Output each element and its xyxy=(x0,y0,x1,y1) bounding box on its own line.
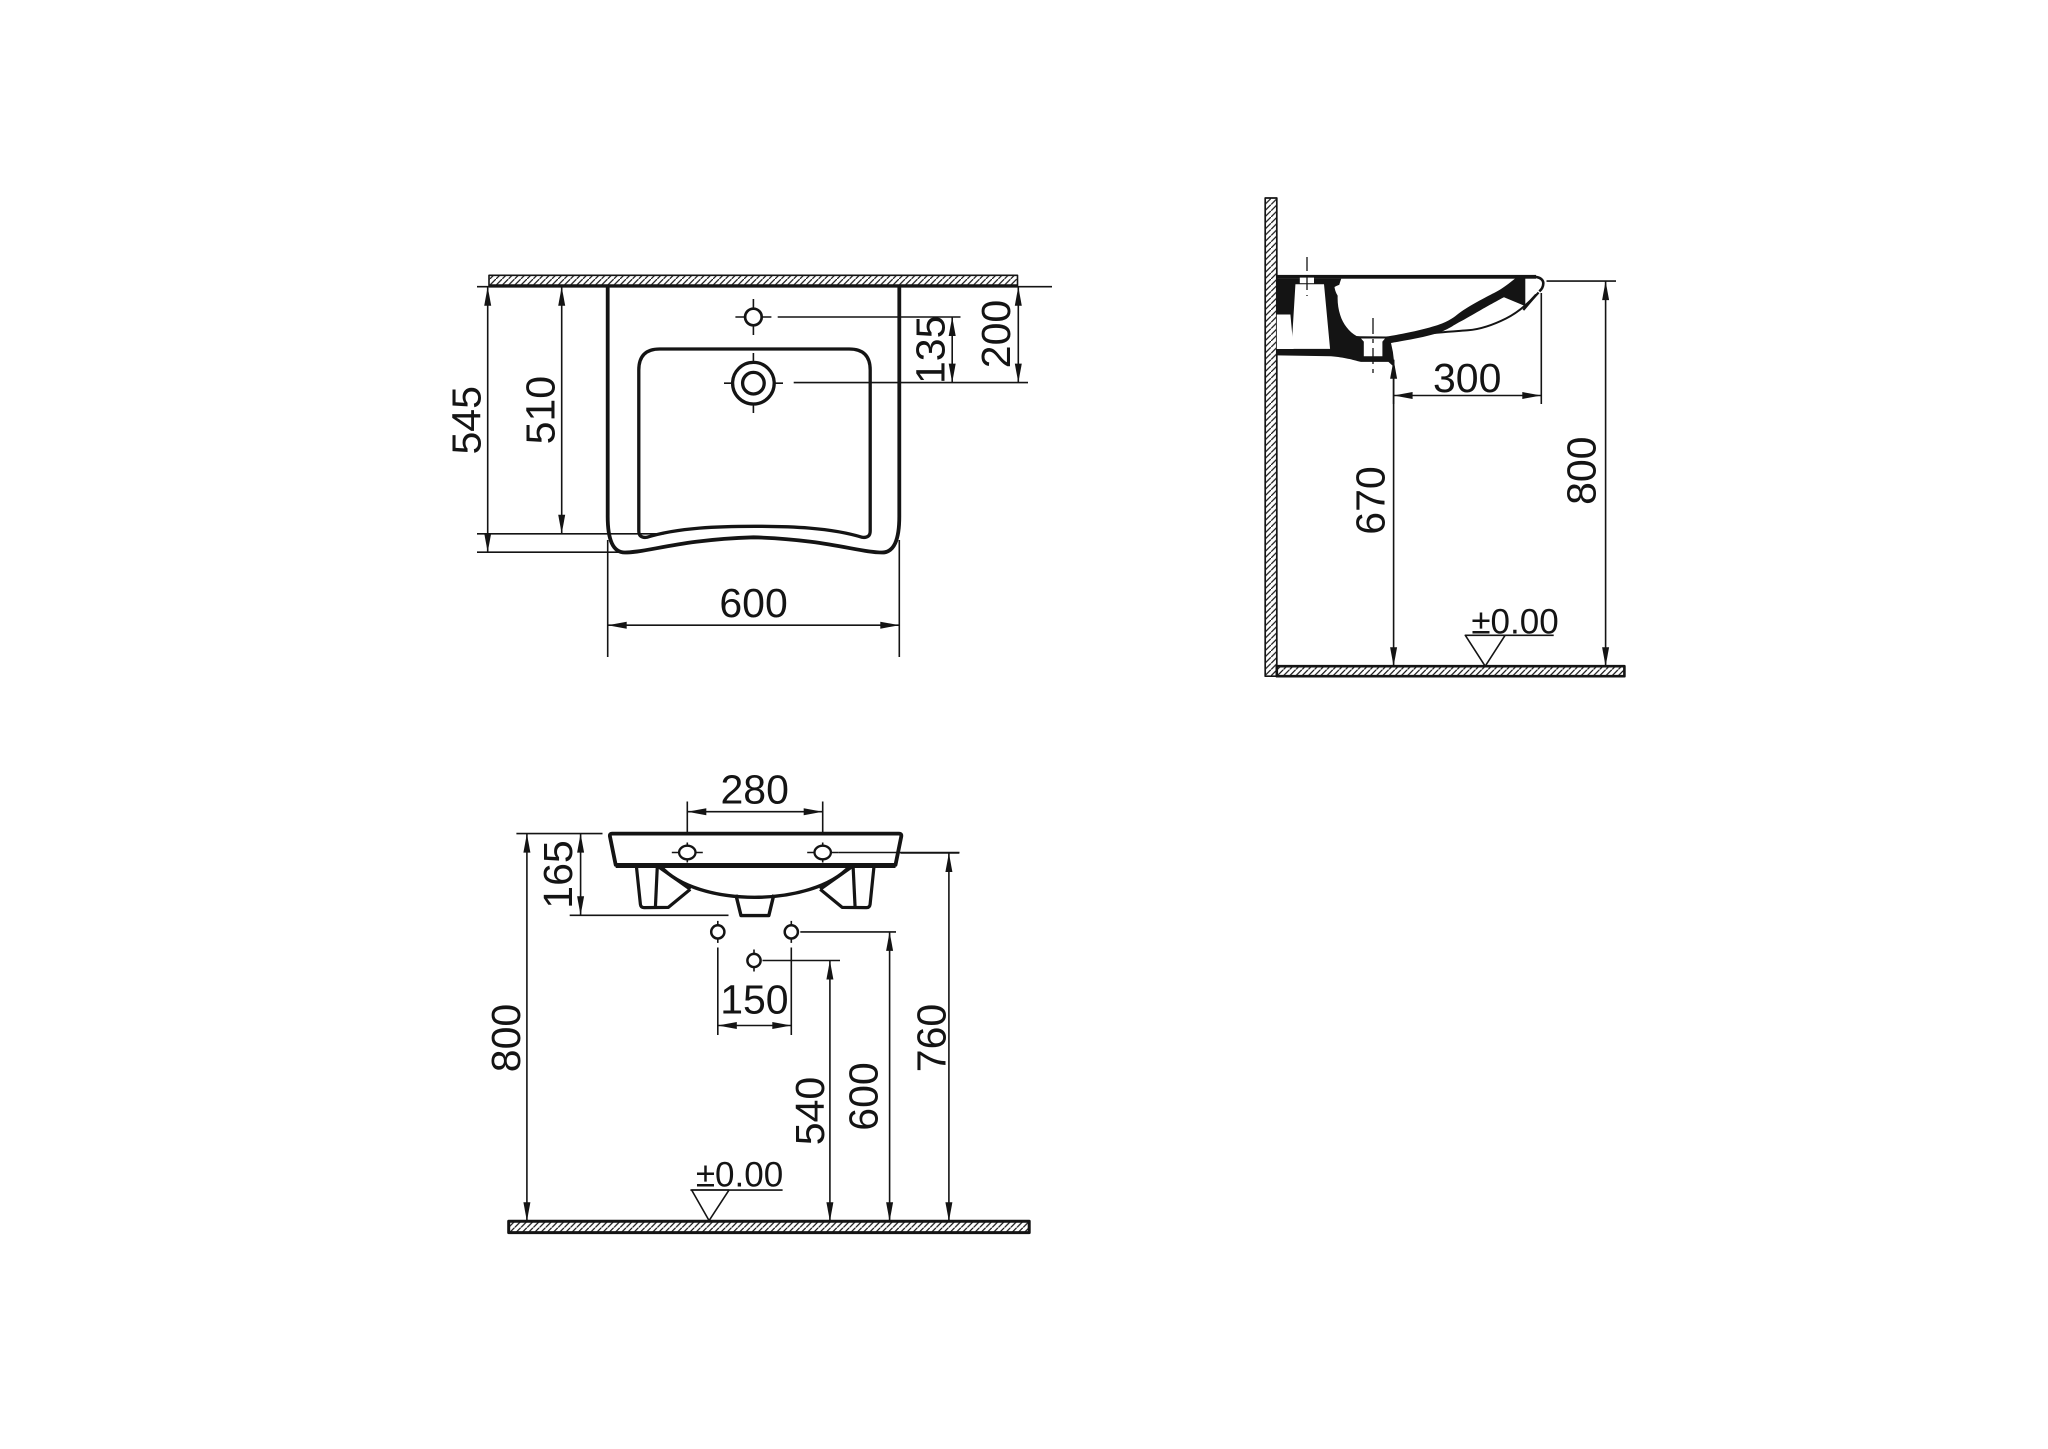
svg-text:165: 165 xyxy=(535,840,581,908)
svg-text:545: 545 xyxy=(444,386,490,454)
svg-text:670: 670 xyxy=(1347,466,1393,534)
svg-text:200: 200 xyxy=(973,300,1019,368)
svg-text:300: 300 xyxy=(1433,355,1501,401)
svg-text:±0.00: ±0.00 xyxy=(696,1156,783,1195)
svg-text:540: 540 xyxy=(787,1077,833,1145)
svg-text:150: 150 xyxy=(720,976,788,1022)
svg-text:800: 800 xyxy=(1558,436,1604,504)
svg-text:280: 280 xyxy=(720,766,788,812)
svg-text:±0.00: ±0.00 xyxy=(1471,603,1558,642)
svg-text:135: 135 xyxy=(907,316,953,384)
svg-text:760: 760 xyxy=(909,1004,955,1072)
svg-text:600: 600 xyxy=(841,1062,887,1130)
svg-text:800: 800 xyxy=(483,1004,529,1072)
svg-text:600: 600 xyxy=(719,580,787,626)
svg-text:510: 510 xyxy=(517,376,563,444)
